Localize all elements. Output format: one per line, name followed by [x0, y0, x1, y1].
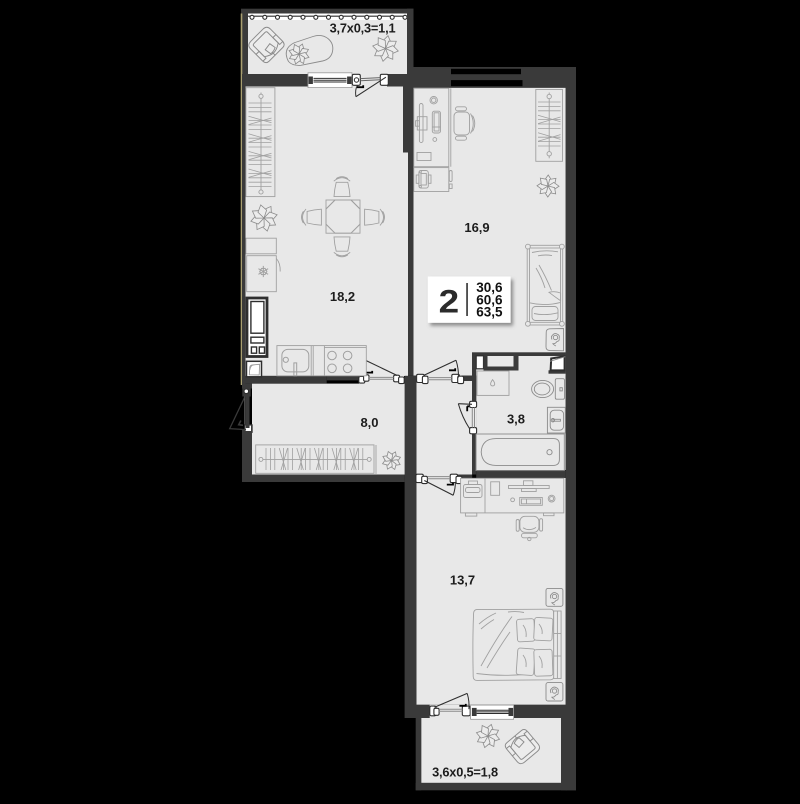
svg-text:2: 2: [439, 283, 460, 319]
svg-text:16,9: 16,9: [464, 220, 489, 235]
svg-text:63,5: 63,5: [476, 305, 503, 320]
svg-text:3,6x0,5=1,8: 3,6x0,5=1,8: [432, 765, 498, 780]
svg-text:8,0: 8,0: [360, 415, 378, 430]
svg-text:3,8: 3,8: [507, 411, 525, 426]
svg-text:3,7x0,3=1,1: 3,7x0,3=1,1: [330, 20, 396, 35]
svg-text:18,2: 18,2: [330, 289, 355, 304]
svg-text:13,7: 13,7: [450, 573, 475, 588]
